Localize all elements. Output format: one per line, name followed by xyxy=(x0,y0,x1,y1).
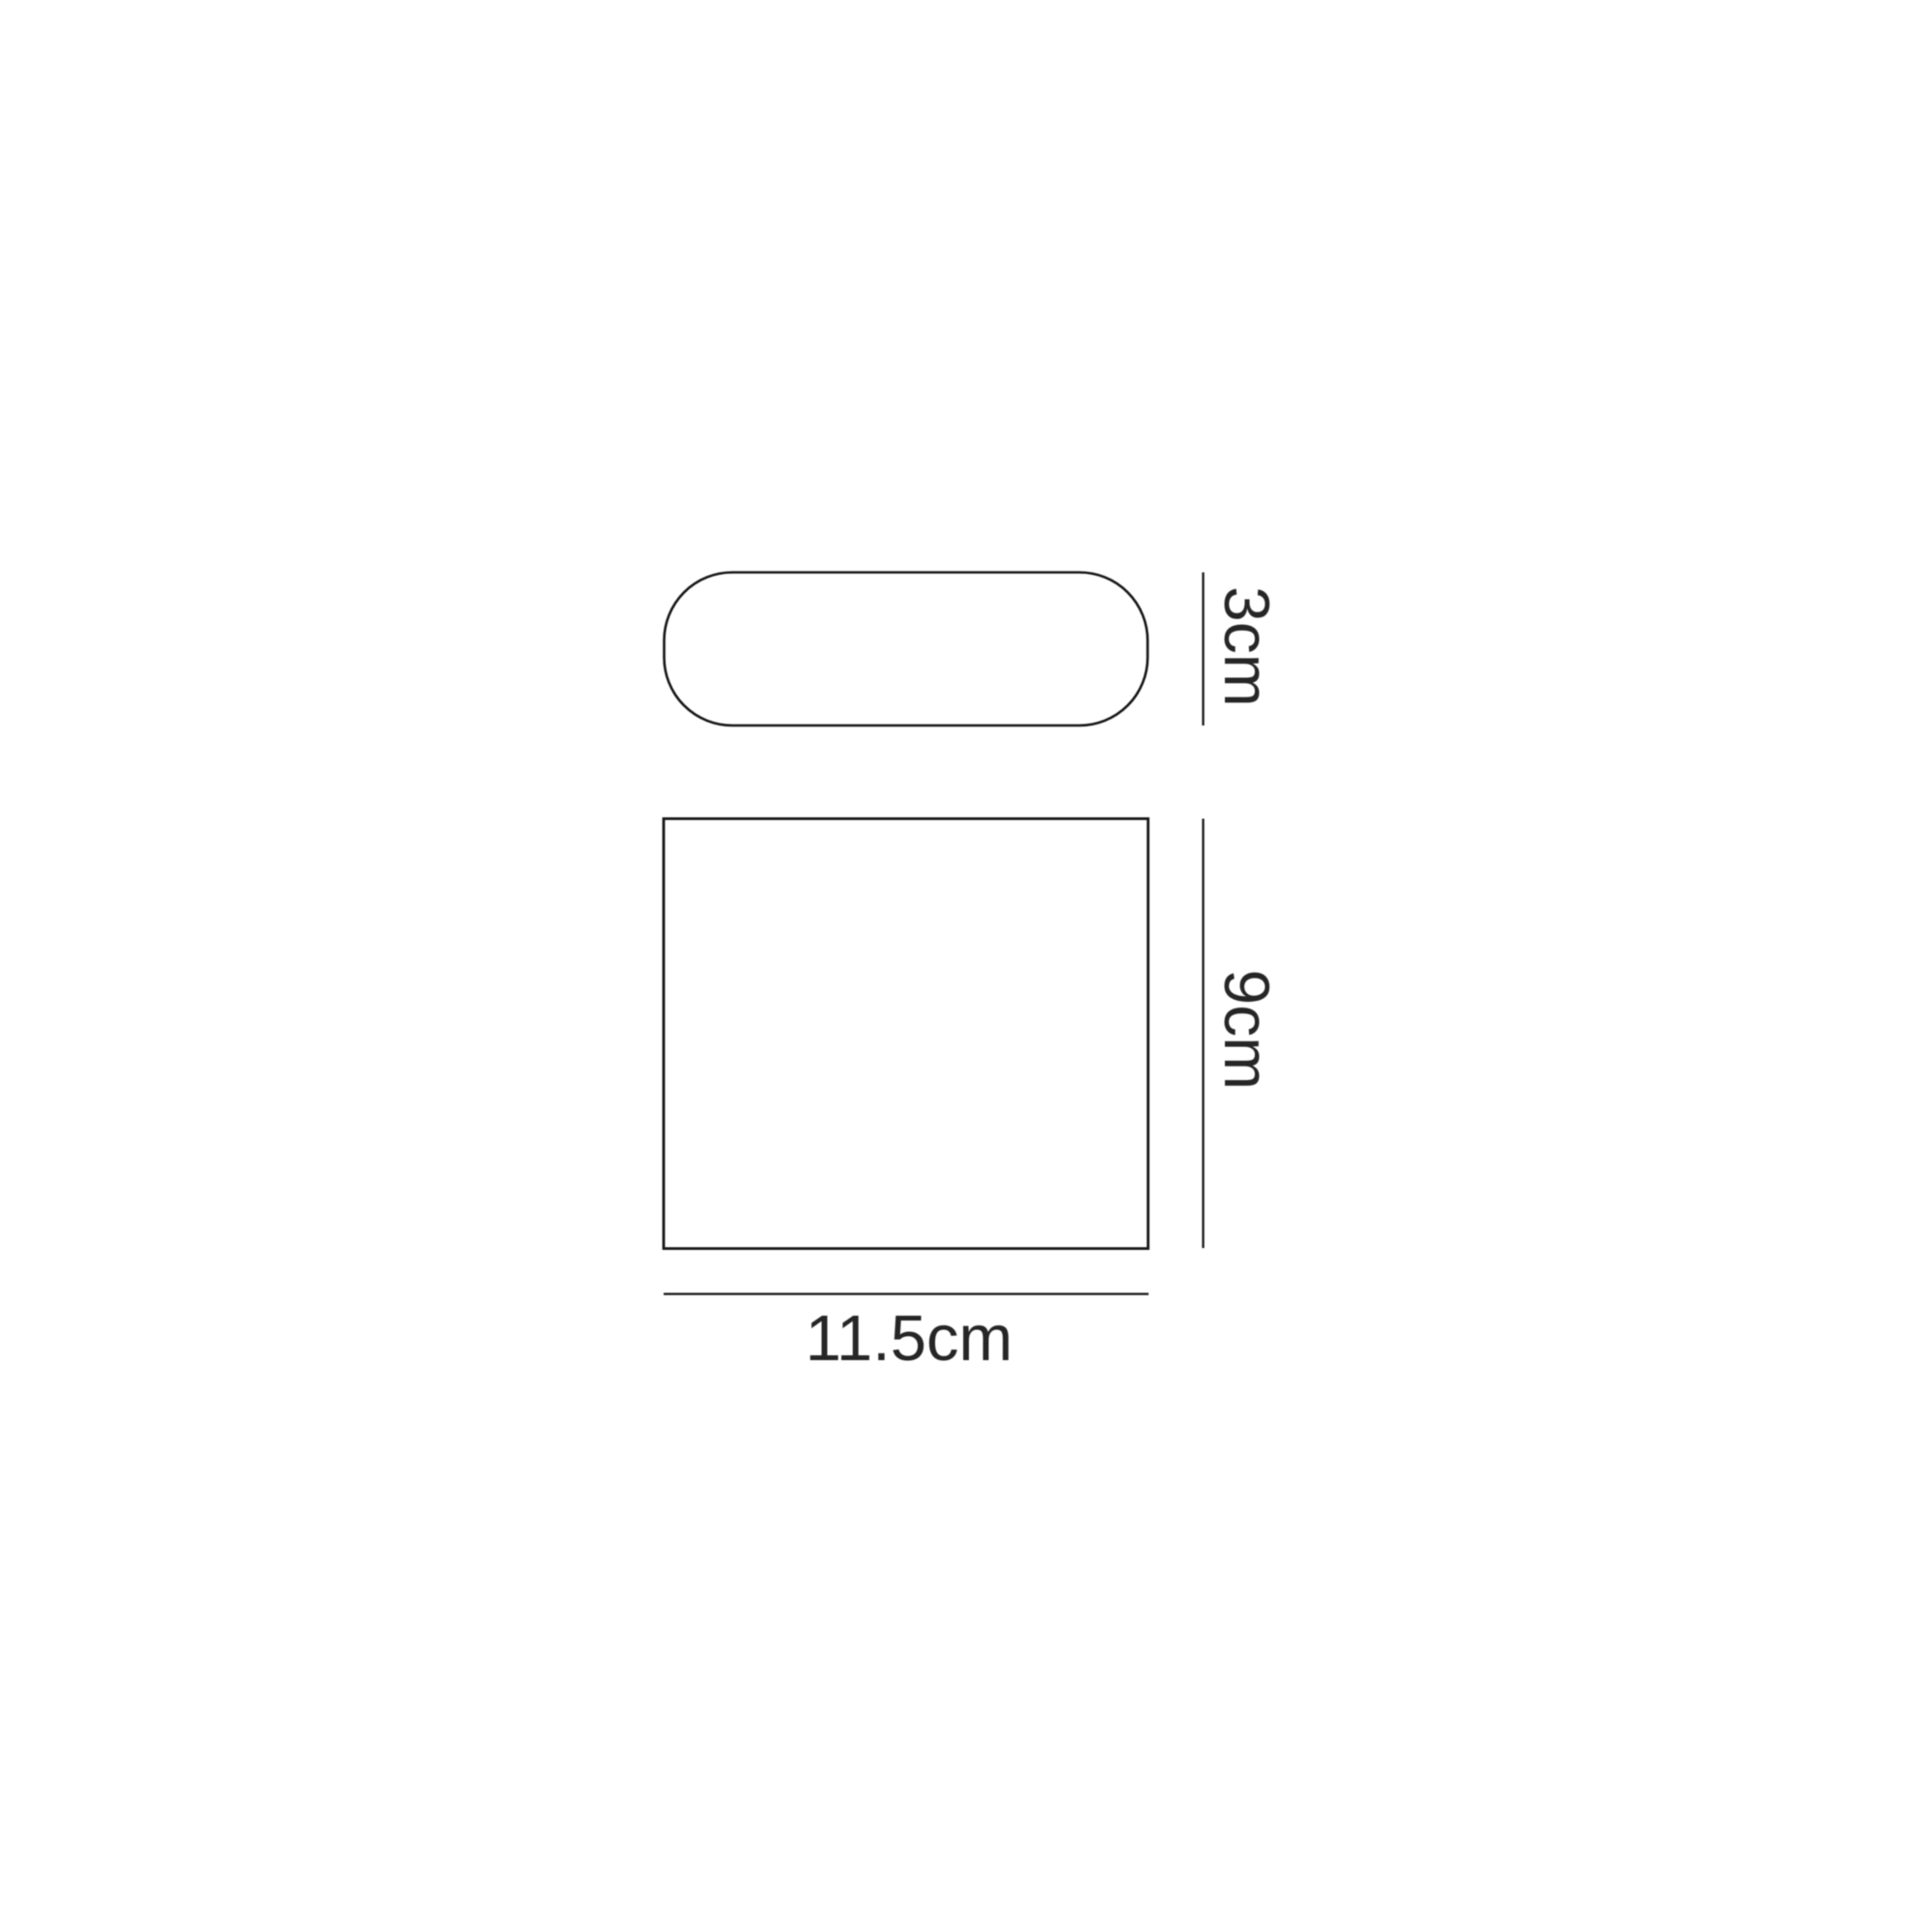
svg-text:11.5cm: 11.5cm xyxy=(806,1302,1013,1375)
svg-text:3cm: 3cm xyxy=(1211,586,1283,707)
svg-text:9cm: 9cm xyxy=(1211,970,1283,1091)
